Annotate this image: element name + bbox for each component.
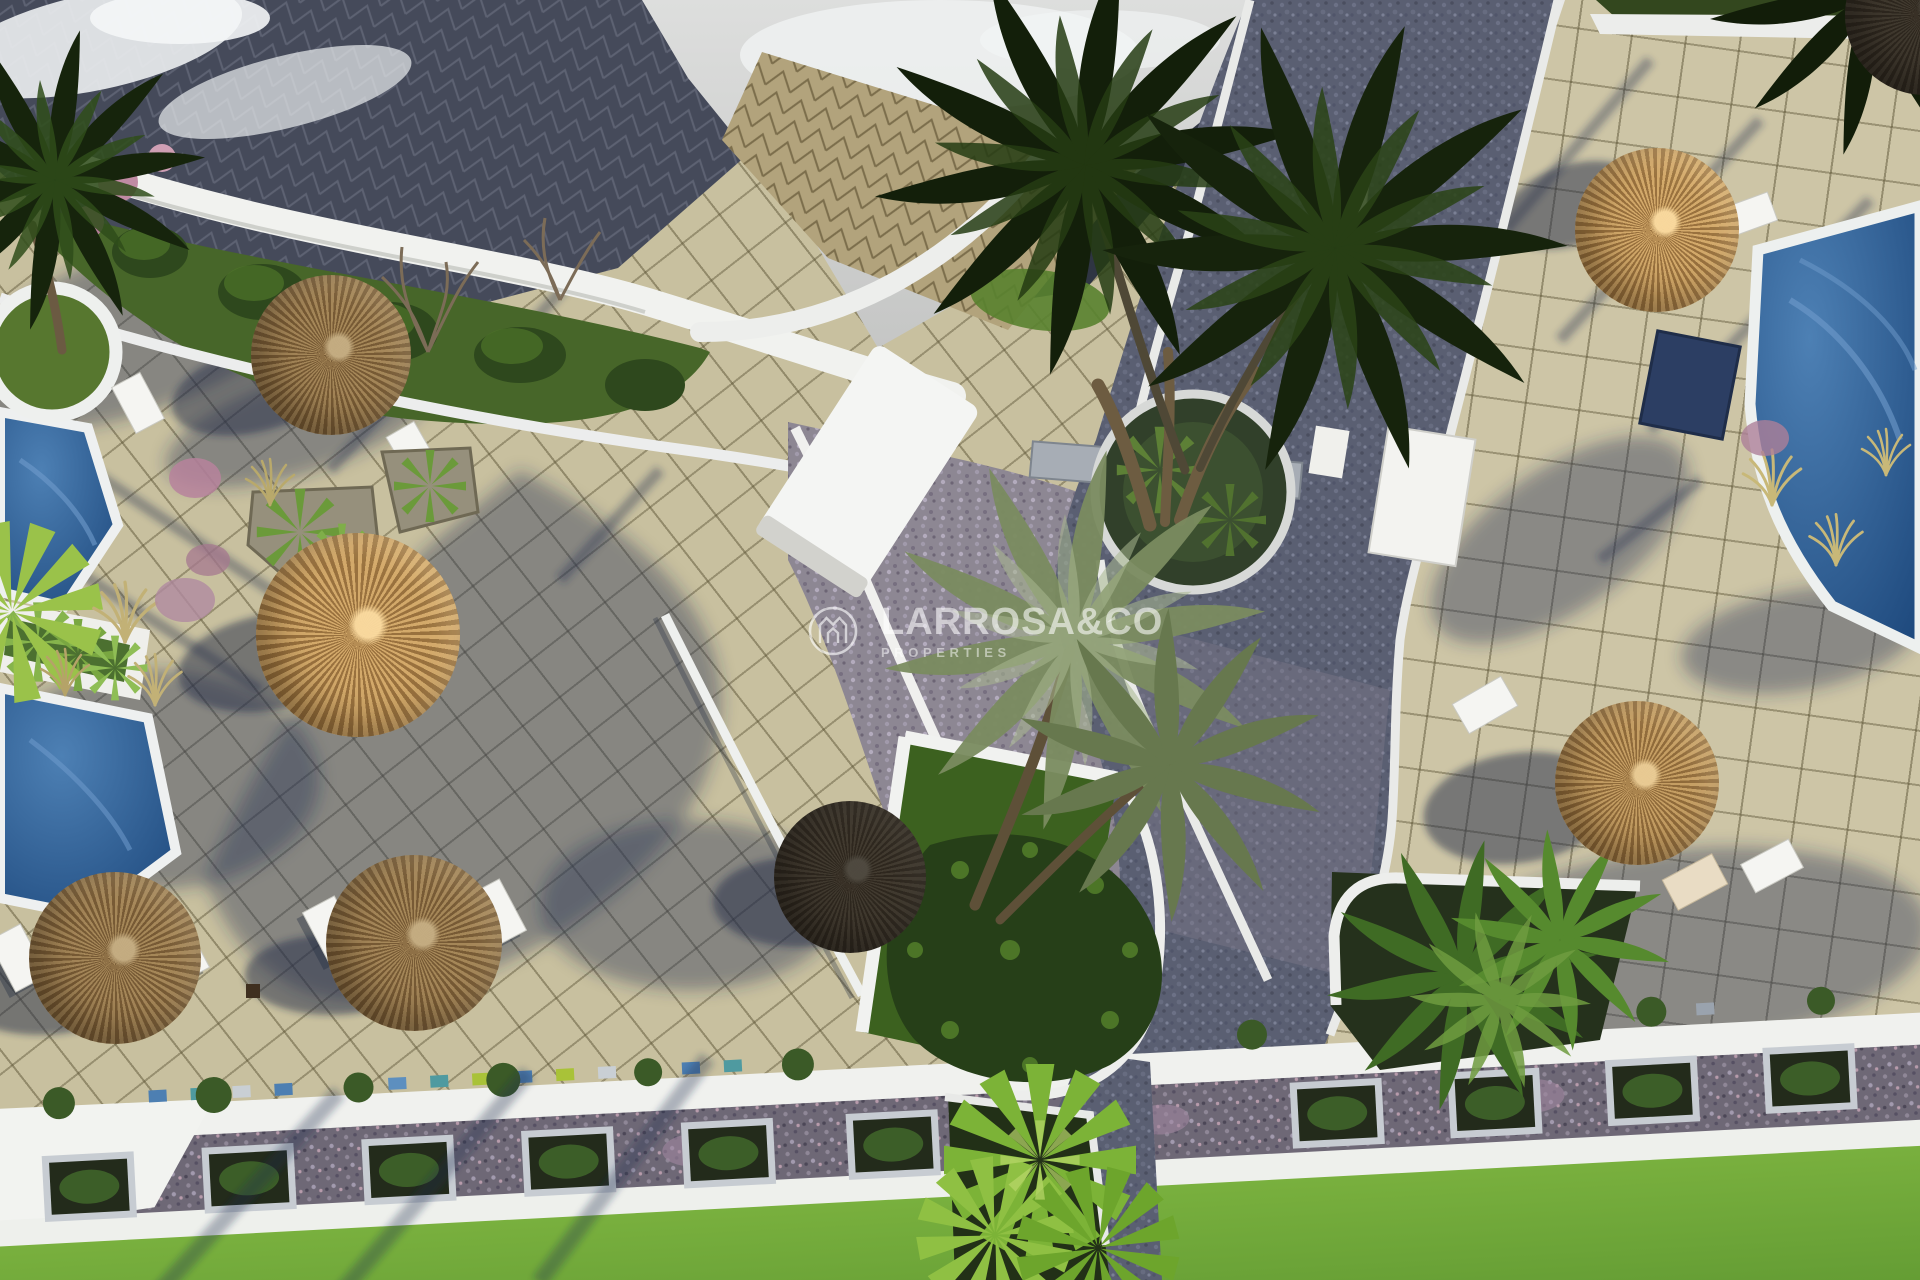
thatch-umbrella-4 bbox=[326, 855, 502, 1031]
watermark: LARROSA&CO PROPERTIES bbox=[799, 597, 1163, 665]
thatch-umbrella-5 bbox=[774, 801, 926, 953]
thatch-umbrella-1 bbox=[251, 275, 411, 435]
thatch-umbrella-3 bbox=[29, 872, 201, 1044]
thatch-umbrella-7 bbox=[1555, 701, 1719, 865]
watermark-tagline: PROPERTIES bbox=[881, 645, 1163, 660]
thatch-umbrella-2 bbox=[256, 533, 460, 737]
aerial-render-scene: LARROSA&CO PROPERTIES bbox=[0, 0, 1920, 1280]
crown-monogram-circle-icon bbox=[799, 597, 867, 665]
watermark-brand: LARROSA&CO bbox=[881, 603, 1163, 641]
thatch-umbrella-6 bbox=[1575, 148, 1739, 312]
